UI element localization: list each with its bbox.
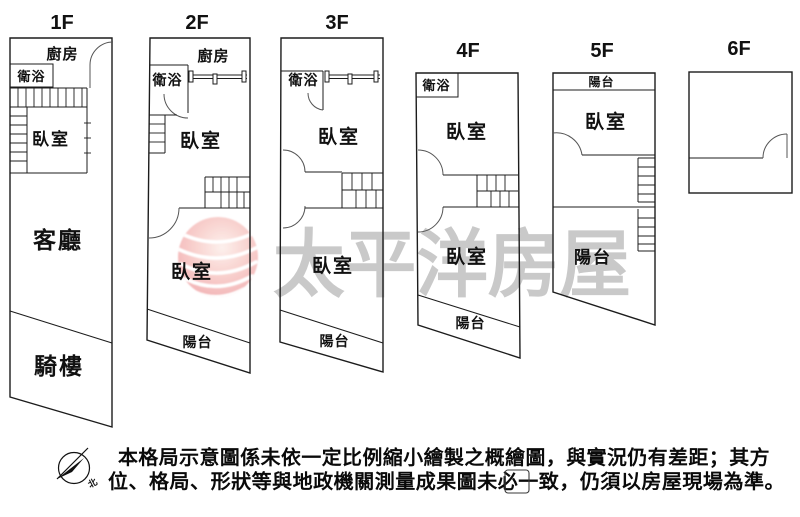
room-label-bedroom-lower-3f: 臥室 xyxy=(312,254,352,277)
room-label-bedroom-5f: 臥室 xyxy=(585,110,625,133)
floorplan-1f: 1F 廚房 衛浴 xyxy=(10,12,113,427)
kitchen-counter-3f xyxy=(325,71,380,84)
room-label-balcony-top-5f: 陽台 xyxy=(589,74,614,89)
landing-doors-3f xyxy=(283,150,342,228)
stairs-3f xyxy=(305,173,383,208)
disclaimer-line-1: 本格局示意圖係未依一定比例縮小繪製之概繪圖，與實況仍有差距；其方 xyxy=(118,446,770,469)
floorplan-3f: 3F 衛浴 臥室 臥室 xyxy=(280,12,383,372)
floorplan-canvas: 太平洋房屋 1F xyxy=(0,0,800,517)
floor-title-5f: 5F xyxy=(590,40,613,62)
room-label-kitchen-1f: 廚房 xyxy=(47,45,78,63)
room-label-bedroom-lower-2f: 臥室 xyxy=(171,260,211,283)
arcade-divider-wall xyxy=(10,311,112,343)
room-label-bathroom-4f: 衛浴 xyxy=(422,78,451,93)
room-label-bedroom-upper-2f: 臥室 xyxy=(180,129,220,152)
floorplan-4f: 4F 衛浴 臥室 臥室 陽台 xyxy=(416,40,520,358)
room-label-bathroom-3f: 衛浴 xyxy=(288,72,319,88)
room-label-balcony-4f: 陽台 xyxy=(456,315,485,331)
floor-outline-6f xyxy=(689,72,792,193)
stairs-left-1f xyxy=(10,107,27,173)
stairs-upper-1f xyxy=(10,88,87,107)
watermark: 太平洋房屋 xyxy=(178,217,631,307)
disclaimer: 本格局示意圖係未依一定比例縮小繪製之概繪圖，與實況仍有差距；其方 位、格局、形狀… xyxy=(108,446,785,493)
floor-title-2f: 2F xyxy=(185,12,208,34)
stairs-lower-5f xyxy=(638,209,655,251)
floor-outline-3f xyxy=(280,38,383,372)
floorplan-6f: 6F xyxy=(689,38,792,193)
room-label-bedroom-upper-4f: 臥室 xyxy=(446,120,486,143)
floorplan-2f: 2F xyxy=(147,12,250,373)
room-label-bedroom-upper-3f: 臥室 xyxy=(318,125,358,148)
compass-icon: 北 xyxy=(57,448,99,490)
entry-door-1f xyxy=(90,42,113,88)
room-label-arcade-1f: 騎樓 xyxy=(34,353,82,379)
kitchen-counter-2f xyxy=(189,71,247,84)
room-label-kitchen-2f: 廚房 xyxy=(198,47,229,65)
compass-north-label: 北 xyxy=(86,476,99,490)
room-label-balcony-2f: 陽台 xyxy=(183,334,212,350)
floor-outline-2f xyxy=(147,38,250,373)
floor-title-3f: 3F xyxy=(325,12,348,34)
stairs-left-2f xyxy=(149,115,177,153)
stairs-4f xyxy=(443,175,519,207)
room-label-bathroom-1f: 衛浴 xyxy=(17,69,46,84)
floor-title-1f: 1F xyxy=(50,12,73,34)
floor-title-6f: 6F xyxy=(727,38,750,60)
room-door-2f xyxy=(149,208,179,238)
bedroom-door-5f xyxy=(553,133,655,155)
room-label-bedroom-lower-4f: 臥室 xyxy=(446,245,486,268)
floor-title-4f: 4F xyxy=(456,40,479,62)
room-label-bathroom-2f: 衛浴 xyxy=(152,72,183,88)
room-label-balcony-3f: 陽台 xyxy=(320,333,349,349)
stairs-upper-5f xyxy=(638,158,655,202)
brand-logo-icon xyxy=(178,217,258,297)
disclaimer-line-2: 位、格局、形狀等與地政機關測量成果圖未必一致，仍須以房屋現場為準。 xyxy=(108,470,785,493)
room-label-bedroom-1f: 臥室 xyxy=(32,129,68,149)
door-6f xyxy=(763,134,787,158)
room-label-living-1f: 客廳 xyxy=(33,227,81,253)
compass-needle xyxy=(57,458,84,479)
stairs-mid-2f xyxy=(179,177,250,208)
landing-doors-4f xyxy=(418,150,477,232)
floorplan-page: 太平洋房屋 1F xyxy=(0,0,800,517)
